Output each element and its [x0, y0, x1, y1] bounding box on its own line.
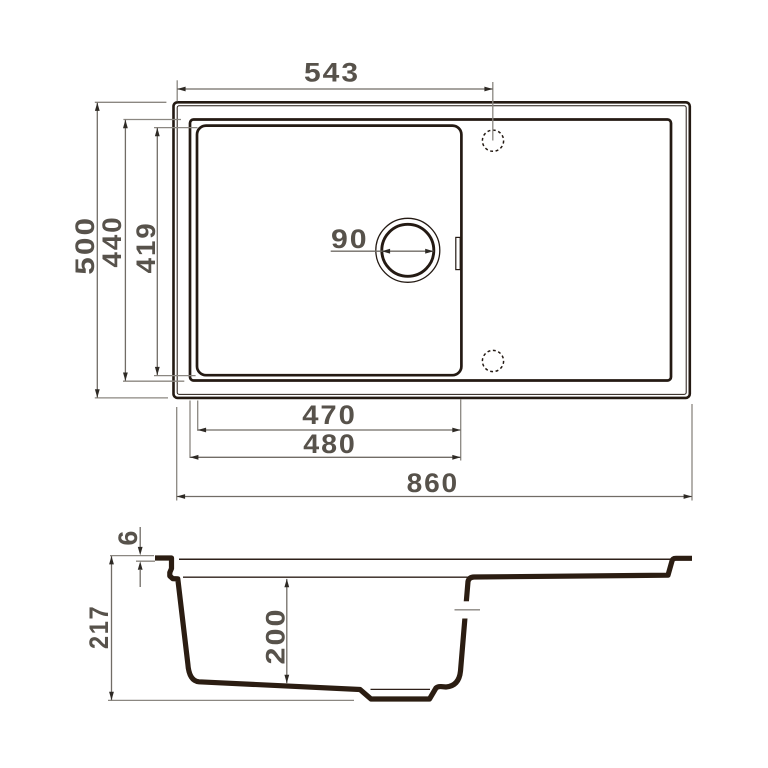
svg-text:480: 480 — [303, 429, 356, 459]
svg-text:470: 470 — [302, 400, 356, 430]
svg-text:90: 90 — [331, 225, 369, 255]
svg-text:200: 200 — [261, 608, 291, 665]
svg-text:217: 217 — [85, 605, 115, 649]
svg-text:860: 860 — [407, 467, 459, 497]
svg-text:419: 419 — [130, 221, 161, 273]
svg-text:543: 543 — [304, 58, 360, 88]
svg-text:6: 6 — [113, 529, 143, 546]
svg-text:440: 440 — [96, 216, 127, 268]
